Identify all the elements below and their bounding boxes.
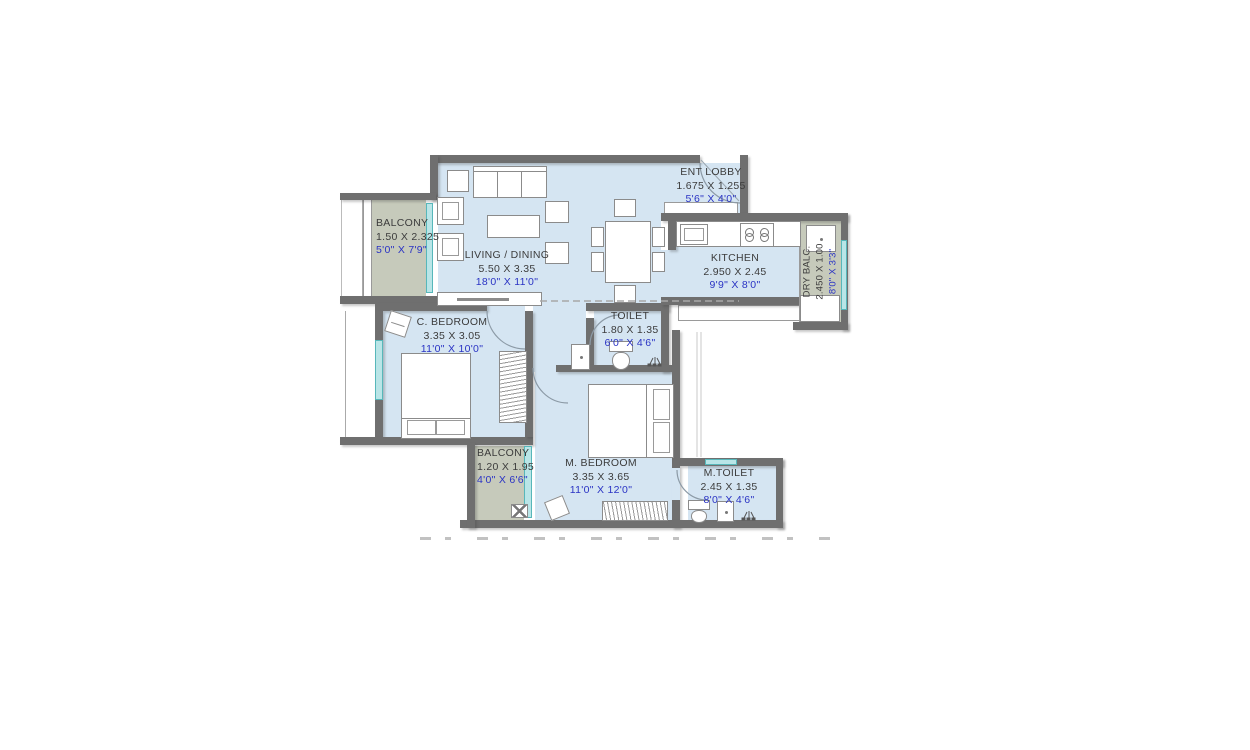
room-name: LIVING / DINING	[437, 249, 577, 263]
room-imperial-dim: 4'0" X 6'6"	[477, 474, 534, 488]
dining-table	[605, 221, 651, 283]
room-metric-dim: 1.675 X 1.255	[641, 180, 781, 194]
sofa-seat-line	[497, 171, 498, 197]
room-imperial-dim: 11'0" X 10'0"	[382, 343, 522, 357]
room-imperial-dim: 6'0" X 4'6"	[560, 337, 700, 351]
room-label-ent-lobby: ENT LOBBY 1.675 X 1.255 5'6" X 4'0"	[641, 166, 781, 207]
tv-icon	[457, 298, 509, 301]
room-name: ENT LOBBY	[641, 166, 781, 180]
room-label-living-dining: LIVING / DINING 5.50 X 3.35 18'0" X 11'0…	[437, 249, 577, 290]
room-metric-dim: 2.450 X 1.00	[814, 226, 827, 318]
wall	[793, 322, 848, 330]
room-metric-dim: 1.50 X 2.325	[376, 231, 439, 245]
tv-unit	[437, 292, 542, 306]
room-metric-dim: 3.35 X 3.05	[382, 330, 522, 344]
room-label-balcony-bottom: BALCONY 1.20 X 1.95 4'0" X 6'6"	[477, 447, 534, 488]
room-imperial-dim: 8'0" X 4'6"	[659, 494, 799, 508]
dining-chair	[652, 227, 665, 247]
room-imperial-dim: 5'6" X 4'0"	[641, 193, 781, 207]
room-label-c-bedroom: C. BEDROOM 3.35 X 3.05 11'0" X 10'0"	[382, 316, 522, 357]
hob-icon	[740, 223, 774, 247]
washbasin-dot	[725, 511, 728, 514]
room-name: KITCHEN	[665, 252, 805, 266]
room-name: M.TOILET	[659, 467, 799, 481]
room-label-m-toilet: M.TOILET 2.45 X 1.35 8'0" X 4'6"	[659, 467, 799, 508]
sofa-back-line	[474, 171, 546, 172]
bed	[588, 384, 674, 458]
wall	[661, 213, 848, 221]
pillow	[436, 420, 465, 435]
dining-chair	[652, 252, 665, 272]
room-name: C. BEDROOM	[382, 316, 522, 330]
dining-chair	[591, 252, 604, 272]
washbasin-dot	[580, 356, 583, 359]
wc-icon	[612, 352, 630, 370]
room-metric-dim: 2.45 X 1.35	[659, 481, 799, 495]
side-table	[545, 201, 569, 223]
pillow	[653, 422, 670, 453]
armchair-cushion	[442, 202, 459, 220]
burner-icon	[745, 233, 754, 242]
room-imperial-dim: 9'9" X 8'0"	[665, 279, 805, 293]
room-imperial-dim: 18'0" X 11'0"	[437, 276, 577, 290]
pillow	[653, 389, 670, 420]
wall	[340, 193, 436, 200]
room-name: BALCONY	[376, 217, 439, 231]
room-label-balcony-top: BALCONY 1.50 X 2.325 5'0" X 7'9"	[376, 217, 439, 258]
room-imperial-dim: 5'0" X 7'9"	[376, 244, 439, 258]
window	[705, 459, 737, 465]
room-name: M. BEDROOM	[531, 457, 671, 471]
room-name: BALCONY	[477, 447, 534, 461]
wall	[661, 297, 805, 305]
pillow	[407, 420, 436, 435]
room-label-kitchen: KITCHEN 2.950 X 2.45 9'9" X 8'0"	[665, 252, 805, 293]
dining-chair	[614, 285, 636, 303]
room-name: DRY BALC.	[801, 226, 814, 318]
room-metric-dim: 5.50 X 3.35	[437, 263, 577, 277]
sofa-seat-line	[521, 171, 522, 197]
balcony-railing	[363, 200, 372, 296]
room-metric-dim: 2.950 X 2.45	[665, 266, 805, 280]
wc-icon	[691, 510, 707, 523]
wall	[430, 155, 700, 163]
parapet-strip	[345, 311, 375, 437]
coffee-table	[487, 215, 540, 238]
duct-icon	[511, 504, 528, 518]
room-metric-dim: 1.80 X 1.35	[560, 324, 700, 338]
room-label-toilet: TOILET 1.80 X 1.35 6'0" X 4'6"	[560, 310, 700, 351]
sofa	[473, 166, 547, 198]
clipped-caption-fragment	[420, 537, 832, 540]
wall	[467, 443, 475, 528]
burner-icon	[760, 233, 769, 242]
room-imperial-dim: 8'0" X 3'3"	[827, 226, 840, 318]
room-label-dry-balcony: DRY BALC. 2.450 X 1.00 8'0" X 3'3"	[801, 226, 840, 318]
bed	[401, 353, 471, 439]
parapet-strip	[341, 200, 363, 296]
wardrobe	[499, 351, 527, 423]
dining-chair	[614, 199, 636, 217]
sink-basin	[684, 228, 704, 241]
dining-chair	[591, 227, 604, 247]
window	[841, 240, 847, 310]
room-imperial-dim: 11'0" X 12'0"	[531, 484, 671, 498]
sink-icon	[680, 224, 708, 245]
floor-plan-canvas: BALCONY 1.50 X 2.325 5'0" X 7'9" LIVING …	[0, 0, 1250, 750]
wall	[460, 520, 783, 528]
room-label-m-bedroom: M. BEDROOM 3.35 X 3.65 11'0" X 12'0"	[531, 457, 671, 498]
room-metric-dim: 1.20 X 1.95	[477, 461, 534, 475]
bed-fold-line	[646, 385, 647, 457]
bed-fold-line	[402, 418, 470, 419]
armchair	[437, 197, 464, 225]
side-table	[447, 170, 469, 192]
wall	[668, 221, 676, 250]
pipe-lines	[697, 332, 701, 457]
room-metric-dim: 3.35 X 3.65	[531, 471, 671, 485]
room-name: TOILET	[560, 310, 700, 324]
